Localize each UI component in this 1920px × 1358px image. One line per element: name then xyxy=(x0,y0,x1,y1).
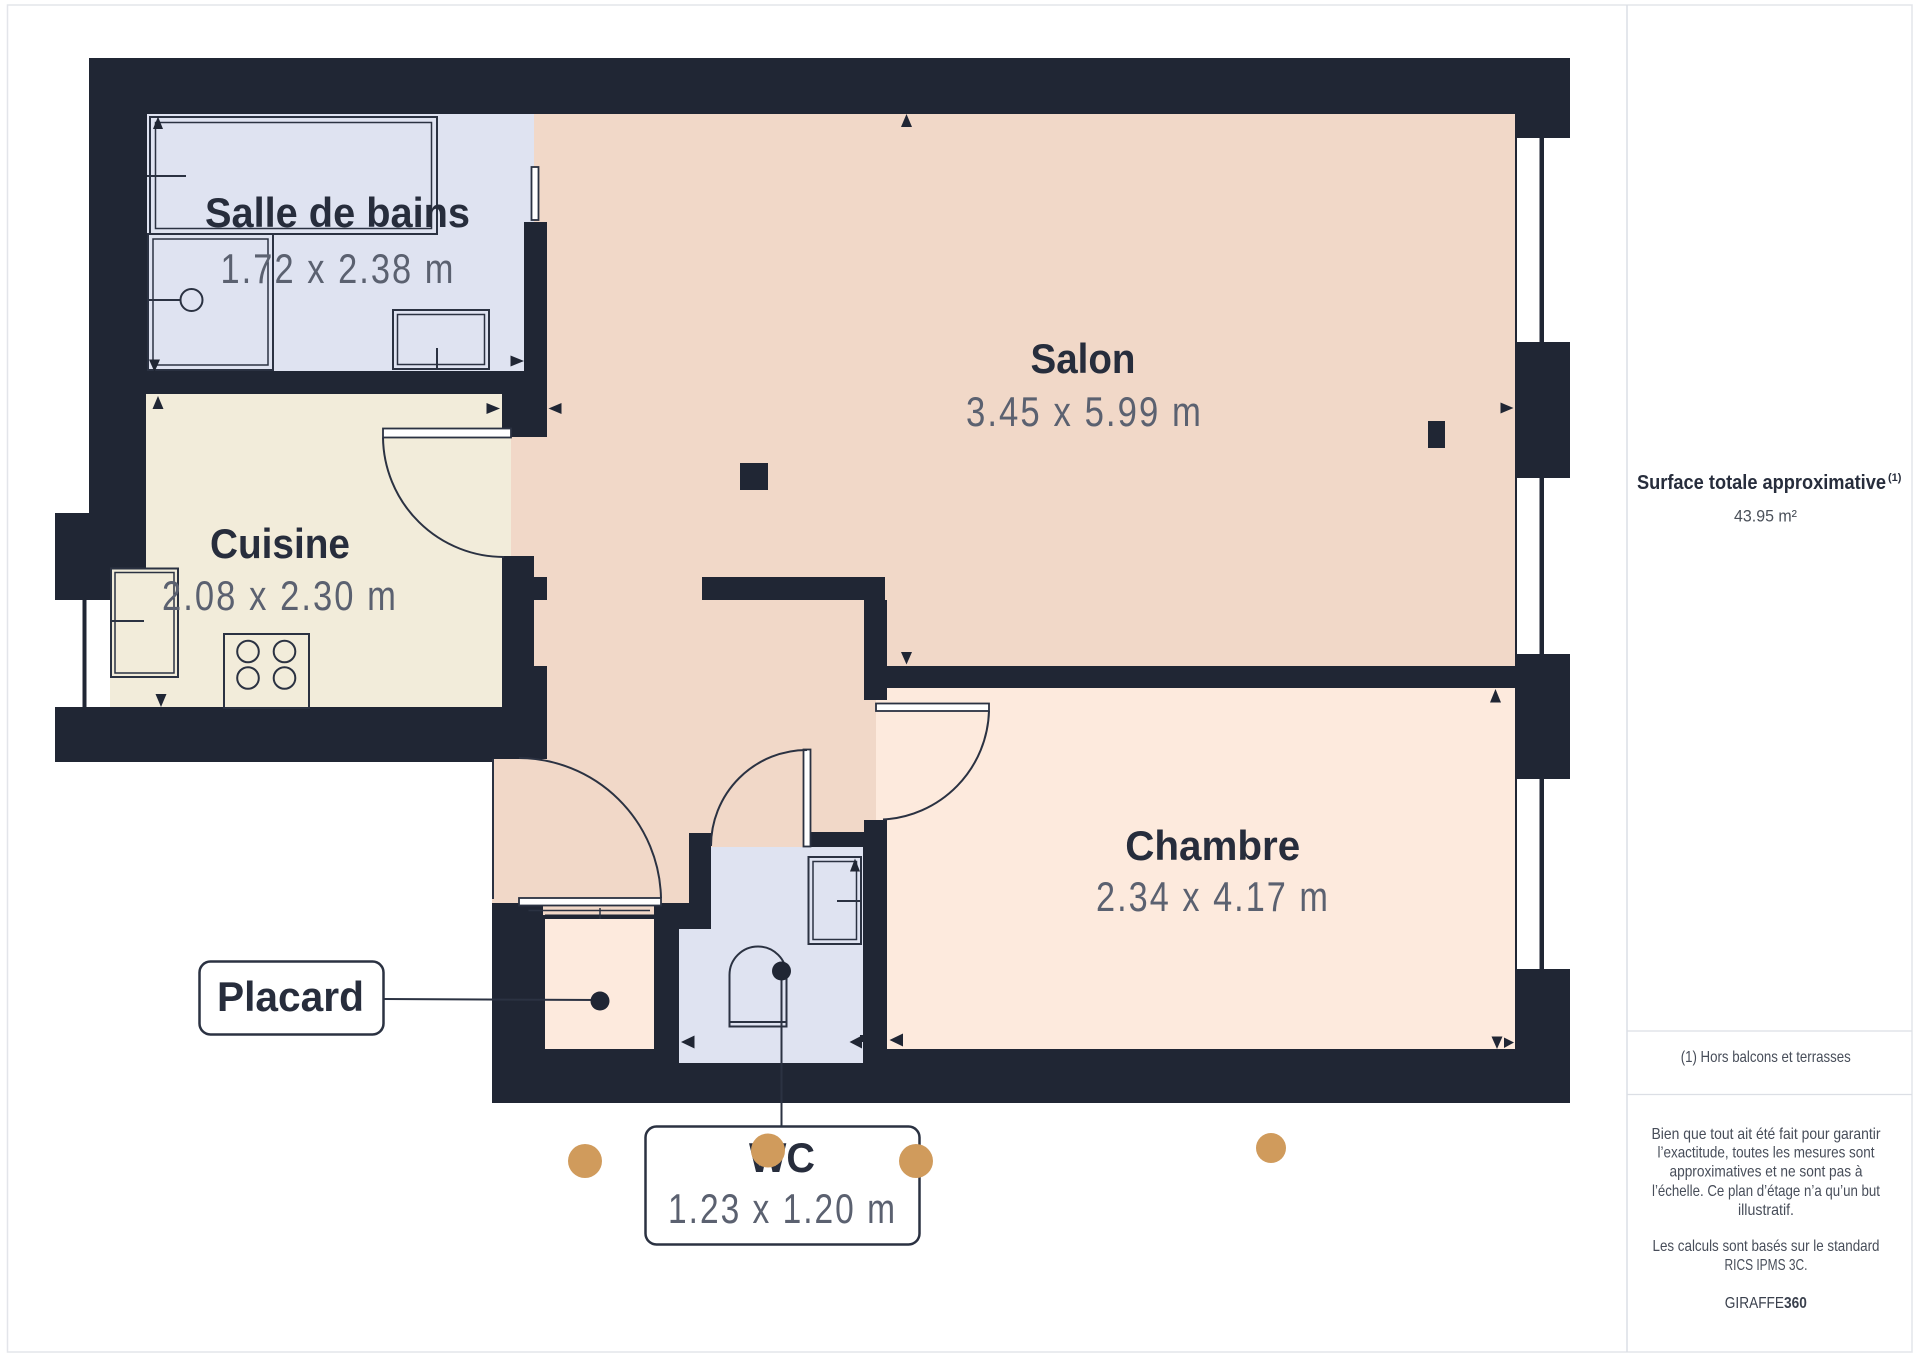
svg-text:Chambre: Chambre xyxy=(1125,822,1300,869)
svg-text:43.95 m²: 43.95 m² xyxy=(1734,507,1797,526)
svg-text:illustratif.: illustratif. xyxy=(1738,1202,1794,1219)
svg-text:RICS IPMS 3C.: RICS IPMS 3C. xyxy=(1725,1257,1808,1274)
svg-text:1.72 x 2.38 m: 1.72 x 2.38 m xyxy=(221,245,456,292)
svg-text:Salon: Salon xyxy=(1031,335,1136,382)
svg-text:Surface totale approximative: Surface totale approximative xyxy=(1637,471,1886,494)
svg-text:2.34 x 4.17 m: 2.34 x 4.17 m xyxy=(1096,873,1330,920)
svg-text:2.08 x 2.30 m: 2.08 x 2.30 m xyxy=(162,572,398,619)
svg-text:Bien que tout ait été fait pou: Bien que tout ait été fait pour garantir xyxy=(1652,1126,1882,1143)
svg-text:Les calculs sont basés sur le: Les calculs sont basés sur le standard xyxy=(1653,1238,1880,1255)
svg-text:Cuisine: Cuisine xyxy=(210,520,350,567)
svg-text:1.23 x 1.20 m: 1.23 x 1.20 m xyxy=(668,1185,897,1232)
svg-text:l’exactitude, toutes les mesur: l’exactitude, toutes les mesures sont xyxy=(1658,1145,1875,1162)
svg-text:l’échelle. Ce plan d’étage n’a: l’échelle. Ce plan d’étage n’a qu’un but xyxy=(1652,1183,1880,1200)
svg-text:Placard: Placard xyxy=(217,973,364,1020)
svg-text:approximatives et ne sont pas: approximatives et ne sont pas à xyxy=(1670,1164,1863,1181)
svg-text:Salle de bains: Salle de bains xyxy=(205,189,470,236)
svg-text:GIRAFFE360: GIRAFFE360 xyxy=(1725,1295,1807,1312)
svg-text:(1): (1) xyxy=(1888,472,1902,484)
svg-text:(1) Hors balcons et terrasses: (1) Hors balcons et terrasses xyxy=(1681,1049,1851,1066)
svg-text:3.45 x 5.99 m: 3.45 x 5.99 m xyxy=(966,388,1203,435)
